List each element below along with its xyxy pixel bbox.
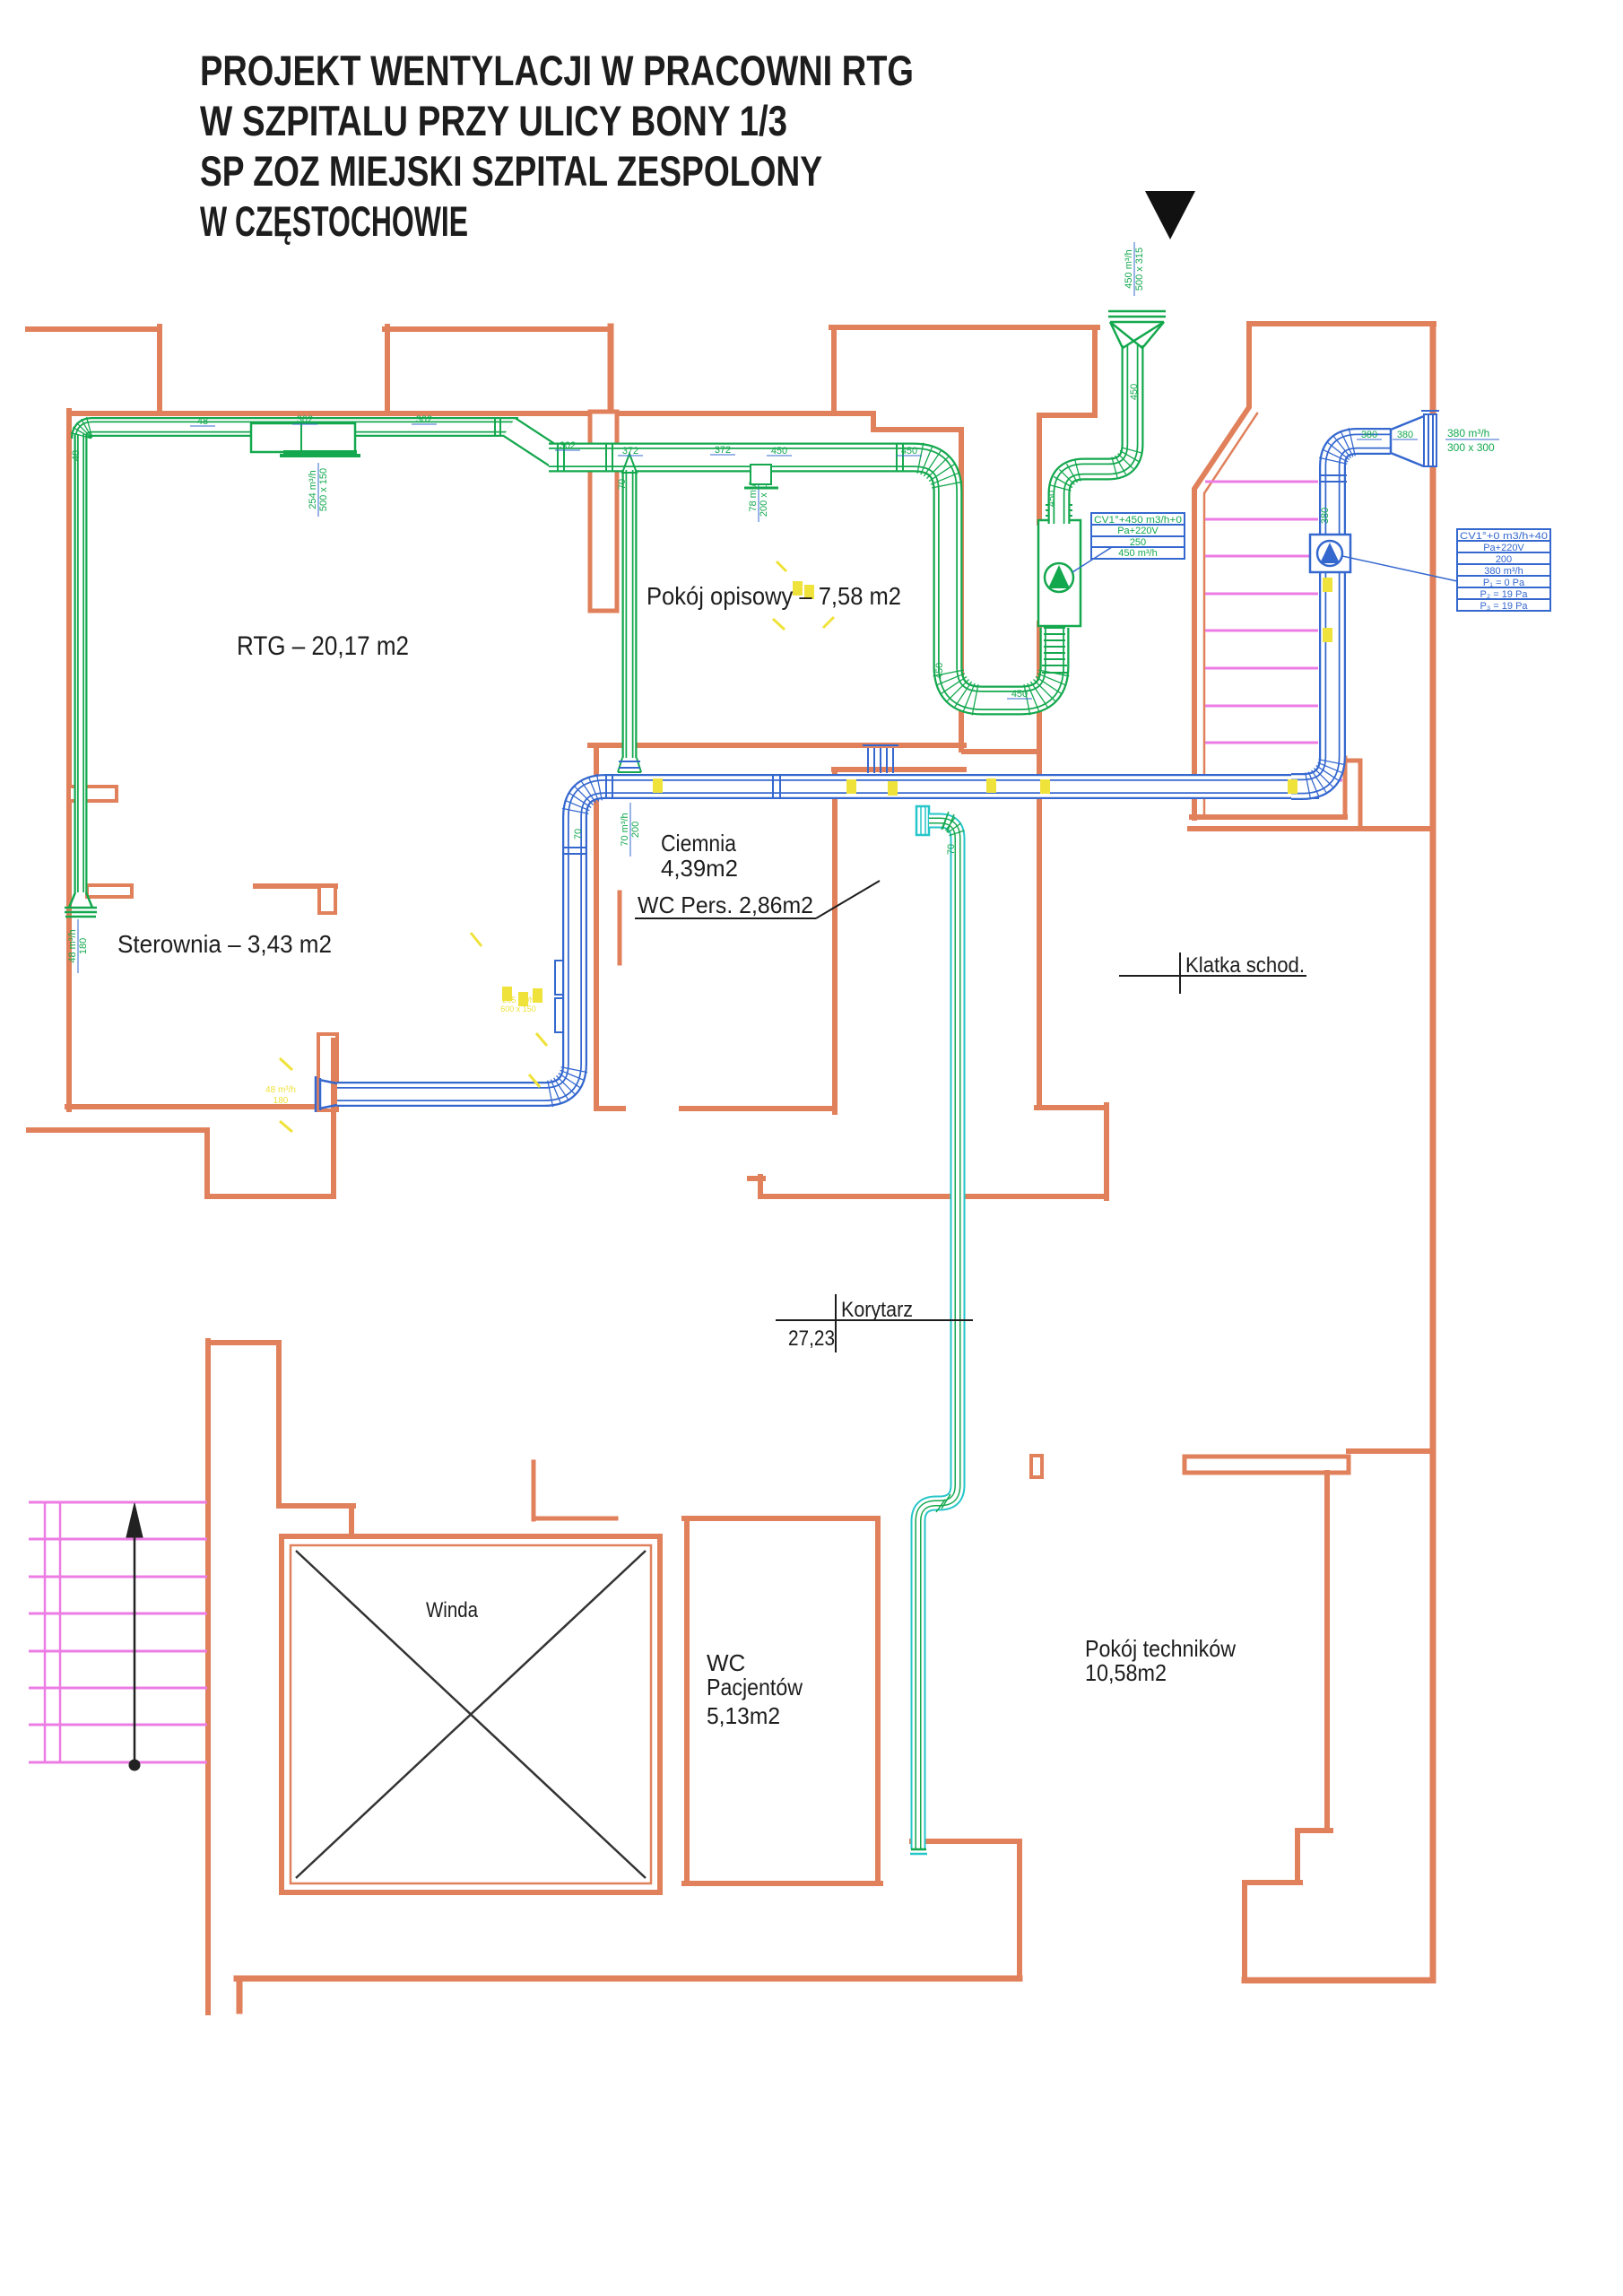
svg-text:4,39m2: 4,39m2 <box>661 855 738 882</box>
svg-text:W SZPITALU PRZY ULICY BONY 1/3: W SZPITALU PRZY ULICY BONY 1/3 <box>200 97 787 144</box>
svg-text:Pokój techników: Pokój techników <box>1085 1635 1236 1662</box>
svg-text:500 x 150: 500 x 150 <box>318 468 329 511</box>
svg-text:372: 372 <box>622 446 638 457</box>
svg-text:450: 450 <box>1011 689 1028 700</box>
svg-text:372: 372 <box>715 445 731 456</box>
svg-text:180: 180 <box>273 1096 289 1106</box>
svg-text:70: 70 <box>617 479 628 490</box>
svg-text:RTG – 20,17 m2: RTG – 20,17 m2 <box>237 631 409 661</box>
svg-text:450 m³/h: 450 m³/h <box>1124 249 1134 288</box>
svg-text:WC: WC <box>707 1649 745 1676</box>
svg-text:Sterownia – 3,43 m2: Sterownia – 3,43 m2 <box>117 930 332 958</box>
svg-text:380 m³/h: 380 m³/h <box>1484 566 1523 577</box>
svg-text:450: 450 <box>934 663 945 679</box>
svg-text:380 m³/h: 380 m³/h <box>1447 427 1489 439</box>
svg-text:450 m³/h: 450 m³/h <box>1118 548 1157 559</box>
svg-text:10,58m2: 10,58m2 <box>1085 1659 1167 1686</box>
svg-text:450: 450 <box>1129 384 1140 400</box>
svg-text:250: 250 <box>1130 537 1146 548</box>
svg-text:CV1°+0 m3/h+40: CV1°+0 m3/h+40 <box>1460 531 1548 542</box>
svg-text:254 m³/h: 254 m³/h <box>308 470 318 509</box>
svg-text:Pokój opisowy – 7,58 m2: Pokój opisowy – 7,58 m2 <box>647 582 901 610</box>
svg-text:48 m³/h: 48 m³/h <box>265 1085 296 1095</box>
svg-text:P₁ = 0 Pa: P₁ = 0 Pa <box>1483 578 1525 588</box>
svg-text:302: 302 <box>560 440 576 451</box>
svg-text:380: 380 <box>1320 508 1331 524</box>
svg-text:CV1°+450 m3/h+0: CV1°+450 m3/h+0 <box>1094 515 1182 526</box>
svg-text:302: 302 <box>297 414 313 425</box>
svg-text:P₃ = 19 Pa: P₃ = 19 Pa <box>1480 601 1528 612</box>
svg-text:70: 70 <box>946 844 957 855</box>
svg-text:180: 180 <box>78 938 89 954</box>
svg-text:380: 380 <box>1361 430 1377 440</box>
svg-text:PROJEKT WENTYLACJI W PRACOWNI: PROJEKT WENTYLACJI W PRACOWNI RTG <box>200 47 914 94</box>
svg-text:W CZĘSTOCHOWIE: W CZĘSTOCHOWIE <box>200 197 468 245</box>
svg-text:Winda: Winda <box>426 1598 479 1622</box>
svg-text:Pacjentów: Pacjentów <box>707 1674 803 1700</box>
svg-text:48: 48 <box>71 450 82 461</box>
svg-text:70 m³/h: 70 m³/h <box>620 813 630 846</box>
svg-text:27,23: 27,23 <box>788 1326 835 1351</box>
svg-text:205 m³/h: 205 m³/h <box>502 996 534 1004</box>
svg-text:Ciemnia: Ciemnia <box>661 830 736 857</box>
svg-text:70: 70 <box>573 829 584 839</box>
svg-text:5,13m2: 5,13m2 <box>707 1702 780 1729</box>
svg-text:Pa+220V: Pa+220V <box>1117 526 1159 536</box>
svg-text:450: 450 <box>1046 491 1057 507</box>
svg-text:300 x 300: 300 x 300 <box>1447 441 1495 454</box>
svg-text:48 m³/h: 48 m³/h <box>67 929 78 962</box>
svg-text:500 x 315: 500 x 315 <box>1134 248 1145 291</box>
svg-text:450: 450 <box>771 446 787 457</box>
svg-text:200: 200 <box>630 822 641 838</box>
svg-text:Pa+220V: Pa+220V <box>1483 543 1524 553</box>
svg-text:200: 200 <box>1496 554 1512 565</box>
svg-text:48: 48 <box>197 416 208 427</box>
svg-text:600 x 150: 600 x 150 <box>500 1004 536 1013</box>
svg-text:380: 380 <box>1397 430 1413 440</box>
svg-text:302: 302 <box>416 414 432 425</box>
svg-text:450: 450 <box>901 446 917 457</box>
svg-text:P₂ = 19 Pa: P₂ = 19 Pa <box>1480 589 1529 600</box>
svg-text:SP ZOZ MIEJSKI SZPITAL ZESPOLO: SP ZOZ MIEJSKI SZPITAL ZESPOLONY <box>200 147 822 195</box>
svg-text:WC Pers. 2,86m2: WC Pers. 2,86m2 <box>638 891 813 918</box>
svg-text:Klatka schod.: Klatka schod. <box>1185 953 1305 978</box>
svg-text:Korytarz: Korytarz <box>841 1298 913 1322</box>
